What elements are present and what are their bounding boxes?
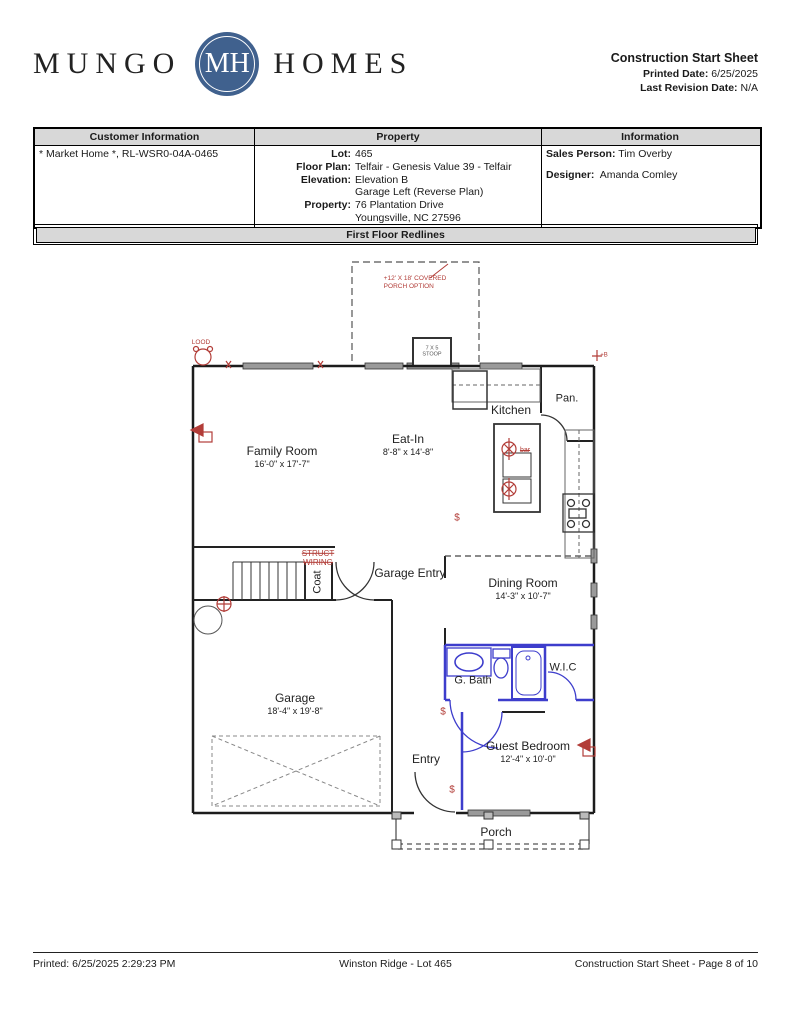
room-label-garage: Garage 18'-4" x 19'-8": [267, 692, 322, 716]
kitchen-island: [494, 424, 540, 512]
water-heater-icon: [194, 606, 222, 634]
room-label-coat: Coat: [312, 570, 325, 593]
room-label-wic: W.I.C: [550, 662, 577, 675]
ceiling-light-icon: [217, 596, 231, 612]
page-footer: Printed: 6/25/2025 2:29:23 PM Winston Ri…: [33, 958, 758, 970]
room-label-guest-bath: G. Bath: [454, 675, 491, 688]
stoop-label: 7 X 5 STOOP: [422, 346, 441, 359]
room-label-pantry: Pan.: [556, 393, 579, 406]
footer-community-lot: Winston Ridge - Lot 465: [275, 958, 517, 970]
room-label-entry: Entry: [412, 753, 440, 767]
footer-page-number: Construction Start Sheet - Page 8 of 10: [516, 958, 758, 970]
garage-door-panel: [212, 736, 380, 806]
room-label-family-room: Family Room 16'-0" x 17'-7": [247, 445, 318, 469]
tv-outlet-icon-bedroom: [578, 739, 595, 756]
switch-symbol: $: [454, 512, 460, 524]
flood-light-label: LOOD: [192, 339, 210, 347]
porch-option-note: +12' X 18' COVERED PORCH OPTION: [384, 275, 447, 291]
switch-symbol: $: [449, 784, 455, 796]
room-label-garage-entry: Garage Entry: [374, 567, 445, 581]
toilet-icon: [493, 649, 510, 658]
room-label-eat-in: Eat-In 8'-8" x 14'-8": [383, 433, 433, 457]
staircase: [233, 562, 305, 600]
floorplan-drawing: [0, 0, 791, 1024]
footer-divider: [33, 952, 758, 953]
struct-wiring-note: STRUCT WIRING: [302, 549, 334, 567]
hose-bib-label: +B: [600, 353, 608, 360]
switch-symbol: $: [440, 706, 446, 718]
island-pendant-icon: [502, 438, 516, 500]
range-icon: [563, 494, 594, 532]
room-label-kitchen: Kitchen: [491, 404, 531, 418]
room-label-guest-bedroom: Guest Bedroom 12'-4" x 10'-0": [486, 740, 570, 764]
bar-note: bar: [520, 447, 530, 455]
construction-start-sheet-page: MUNGO MH HOMES Construction Start Sheet …: [0, 0, 791, 1024]
sink-icon: [455, 653, 483, 671]
footer-printed-timestamp: Printed: 6/25/2025 2:29:23 PM: [33, 958, 275, 970]
room-label-porch: Porch: [480, 826, 511, 840]
room-label-dining-room: Dining Room 14'-3" x 10'-7": [488, 577, 557, 601]
